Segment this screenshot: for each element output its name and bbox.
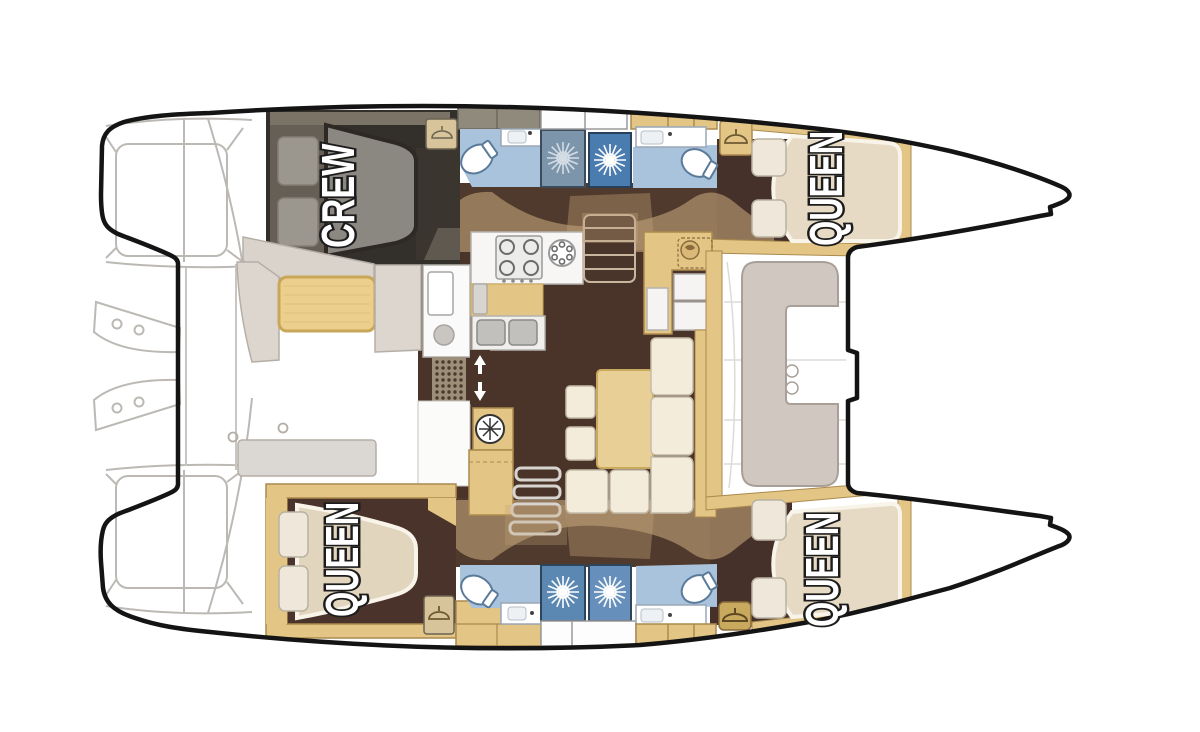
svg-text:QUEEN: QUEEN [796, 512, 848, 627]
svg-text:CREW: CREW [312, 143, 365, 248]
svg-text:QUEEN: QUEEN [800, 131, 852, 246]
svg-text:QUEEN: QUEEN [316, 502, 368, 617]
